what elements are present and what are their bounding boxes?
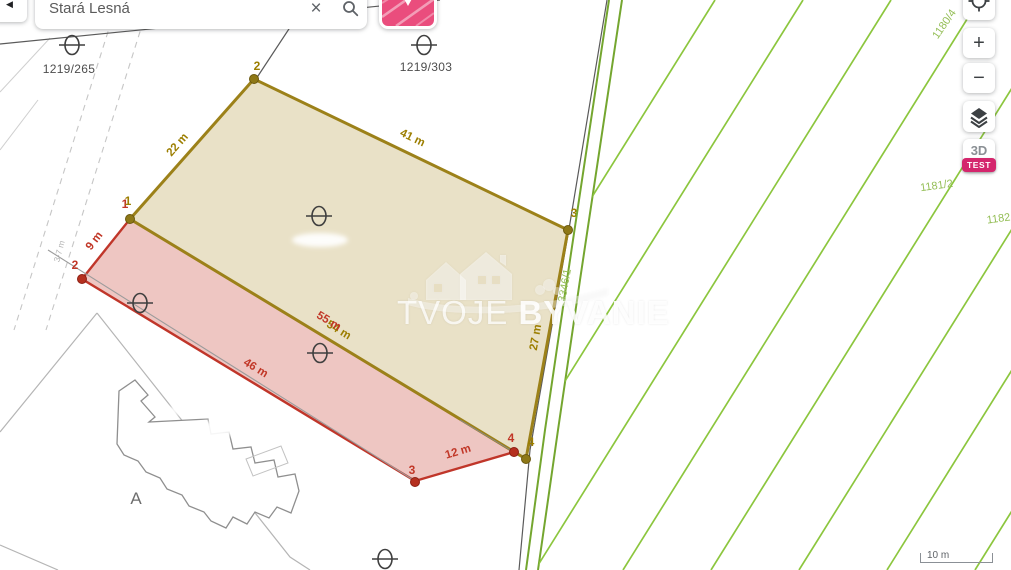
minus-icon: − [973,67,985,90]
tan-vertex-2: 2 [254,59,261,73]
tan-vertex-4: 4 [528,435,535,449]
clear-search-button[interactable]: × [299,0,333,29]
scale-bar-label: 10 m [927,550,949,561]
svg-text:TVOJE BYVANIE: TVOJE BYVANIE [397,294,670,331]
search-input[interactable]: Stará Lesná [49,0,299,17]
layers-button[interactable] [963,101,995,132]
three-d-label: 3D [971,143,988,158]
watermark-text-light: TVOJE [397,294,508,331]
pink-vertex-4: 4 [508,431,515,445]
back-icon: ◀ [6,0,13,10]
building-letter-label: A [130,489,142,508]
search-bar[interactable]: Stará Lesná × [35,0,367,29]
back-button[interactable]: ◀ [0,0,27,22]
parcel-label-1219-265: 1219/265 [43,62,95,76]
zoom-in-button[interactable]: + [963,28,995,58]
layers-icon [969,106,989,128]
map-app: 3-7 m A 1219/265 1219/303 [0,0,1011,570]
pink-vertex-2: 2 [72,258,79,272]
plus-icon: + [973,32,985,55]
test-badge: TEST [962,158,996,172]
map-thumbnail-icon [382,0,434,26]
locate-icon [968,0,990,12]
parcel-label-1219-303: 1219/303 [400,60,452,74]
test-badge-label: TEST [967,160,991,170]
tan-vertex-1: 1 [125,194,132,208]
scale-bar: 10 m [920,553,993,563]
map-style-button[interactable] [379,0,437,29]
search-icon [342,0,359,17]
pink-vertex-3: 3 [409,463,416,477]
zoom-out-button[interactable]: − [963,63,995,93]
map-style-thumbnail [382,0,434,26]
locate-button[interactable] [963,0,995,20]
watermark-text-bold: BYVANIE [519,294,670,331]
map-canvas[interactable]: 3-7 m A 1219/265 1219/303 [0,0,1011,570]
close-icon: × [310,0,321,20]
search-button[interactable] [333,0,367,29]
